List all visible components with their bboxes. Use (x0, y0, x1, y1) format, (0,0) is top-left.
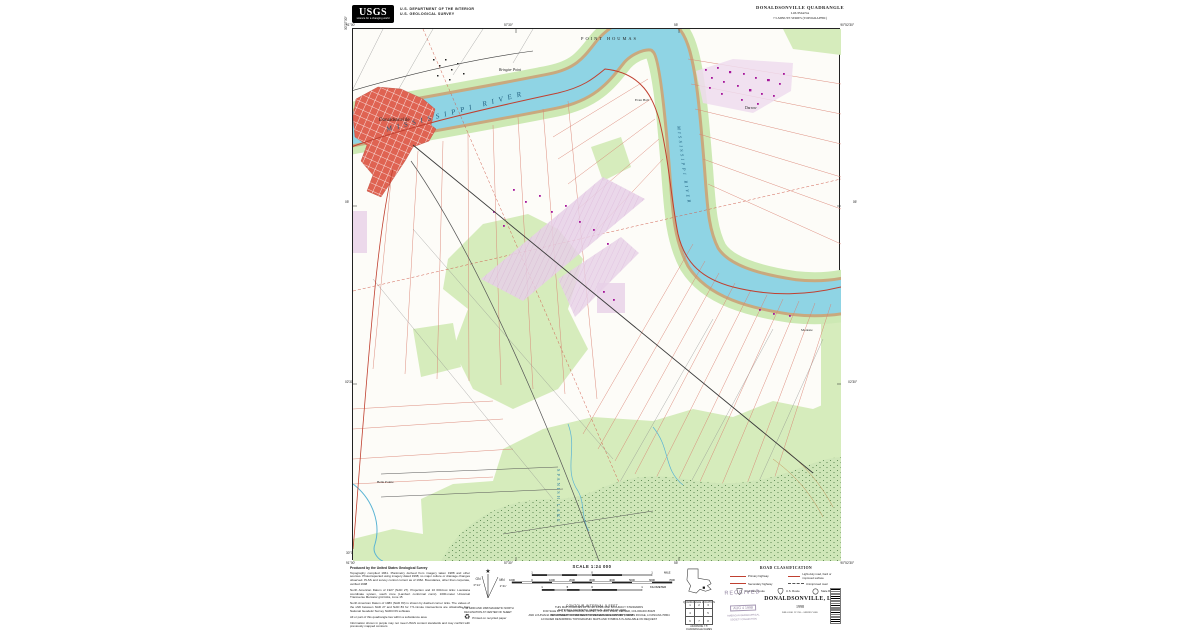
unimproved-road-symbol (788, 583, 804, 584)
received-stamp: RECEIVED AUG 4 1998 AMERICAN GEOGRAPHICA… (719, 589, 766, 622)
donaldsonville-label: Donaldsonville (379, 118, 410, 123)
secondary-highway-symbol (730, 583, 746, 584)
quadrangle-series: 7.5-MINUTE SERIES (TOPOGRAPHIC) (756, 16, 844, 20)
svg-text:★: ★ (485, 568, 490, 575)
adjoining-cell-5: 5 (704, 609, 713, 617)
department-heading: U.S. DEPARTMENT OF THE INTERIOR U.S. GEO… (400, 7, 474, 18)
map-title-year: 1998 (762, 604, 838, 609)
feet-tick-9: 7000 (669, 578, 675, 582)
us-route-shield-icon (777, 588, 784, 595)
km-tick-1r: 1 (641, 585, 643, 589)
adjoining-grid: 1 2 3 4 5 6 7 8 (685, 600, 713, 625)
quad-location-marker (703, 587, 705, 589)
top-tick-55: 55′ (674, 23, 678, 27)
adjoining-cell-7: 7 (695, 617, 704, 625)
adjoining-quadrangles: 1 2 3 4 5 6 7 8 ADJOINING 7.5′ QUADRANGL… (682, 600, 716, 630)
map-title-block: DONALDSONVILLE, LA 1998 DMA 8361 IV SW—S… (762, 596, 838, 614)
left-tick-05: 05′ (345, 200, 349, 204)
scale-title: SCALE 1:24 000 (502, 564, 682, 569)
us-route-label: U.S. Route (786, 589, 800, 593)
corner-coord-bottom-right-lon: 90°52′30″ (840, 561, 854, 565)
evan-hall-label: Evan Hall (635, 98, 649, 102)
right-tick-05: 05′ (853, 200, 857, 204)
barcode (830, 588, 841, 624)
feet-tick-6: 4000 (609, 578, 615, 582)
feet-tick-8: 6000 (649, 578, 655, 582)
adjoining-caption: ADJOINING 7.5′ QUADRANGLE NAMES (682, 626, 716, 630)
light-duty-road-label: Light-duty road, hard or improved surfac… (802, 572, 842, 580)
credit-paragraph-1: Topography compiled 1961. Planimetry der… (350, 572, 470, 587)
credit-paragraph-5: Information shown in purple may not meet… (350, 622, 470, 630)
belle-pointe-label: Belle Pointe (377, 480, 394, 484)
stamp-received: RECEIVED (719, 589, 765, 597)
louisiana-outline (684, 568, 714, 594)
stamp-org-line2: SOCIETY COLLECTION (720, 618, 766, 622)
credit-paragraph-2: North American Datum of 1927 (NAD 27). P… (350, 589, 470, 600)
secondary-highway-label: Secondary highway (748, 582, 772, 586)
quadrangle-title-block: DONALDSONVILLE QUADRANGLE LOUISIANA 7.5-… (756, 5, 844, 20)
km-tick-1: 1 (541, 585, 543, 589)
department-line2: U.S. GEOLOGICAL SURVEY (400, 12, 474, 17)
point-houmas-label: POINT HOUMAS (581, 36, 638, 41)
adjoining-cell-2: 2 (695, 601, 704, 609)
feet-tick-5: 3000 (589, 578, 595, 582)
map-title-code: DMA 8361 IV SW—SERIES V885 (762, 611, 838, 614)
adjoining-cell-6: 6 (686, 617, 695, 625)
map-title-name: DONALDSONVILLE, LA (762, 596, 838, 602)
light-duty-road-symbol (788, 576, 800, 577)
feet-tick-4: 2000 (569, 578, 575, 582)
feet-tick-7: 5000 (629, 578, 635, 582)
state-route-shield-icon (812, 588, 819, 595)
adjoining-cell-3: 3 (704, 601, 713, 609)
map-body: MISSISSIPPI RIVER MISSISSIPPI RIVER POIN… (352, 28, 840, 560)
credit-paragraph-4: All or part of this quadrangle lies with… (350, 616, 470, 620)
gn-value: 0°14′ (474, 583, 481, 587)
feet-tick-1: 1000 (509, 578, 515, 582)
km-unit: KILOMETER (650, 585, 666, 589)
stamp-date: AUG 4 1998 (730, 605, 756, 612)
top-tick-5730: 57′30″ (504, 23, 513, 27)
primary-highway-symbol (730, 576, 746, 577)
adjoining-cell-8: 8 (704, 617, 713, 625)
scale-bars: 1 0 1 MILE 1000 0 1000 2000 3000 4000 50… (502, 570, 682, 596)
unimproved-road-label: Unimproved road (806, 582, 827, 586)
map-canvas: MISSISSIPPI RIVER MISSISSIPPI RIVER POIN… (353, 29, 841, 561)
map-sheet: USGS science for a changing world U.S. D… (344, 0, 858, 630)
gn-label: GN (475, 577, 481, 581)
adjoining-cell-center (695, 609, 704, 617)
mile-tick-0: 0 (591, 570, 593, 574)
adjoining-cell-4: 4 (686, 609, 695, 617)
feet-tick-3: 1000 (549, 578, 555, 582)
credit-paragraph-3: North American Datum of 1983 (NAD 83) is… (350, 602, 470, 613)
right-tick-0230: 02′30″ (848, 380, 857, 384)
credit-heading: Produced by the United States Geological… (350, 566, 470, 570)
quadrangle-location: QUADRANGLE LOCATION (682, 568, 716, 604)
usgs-topo-map-page: USGS science for a changing world U.S. D… (0, 0, 1200, 630)
feet-tick-2: 0 (531, 578, 533, 582)
recycle-icon: ♻ (464, 614, 470, 621)
darrow-label: Darrow (745, 106, 757, 110)
primary-highway-label: Primary highway (748, 574, 769, 578)
mile-tick-1r: 1 (651, 570, 653, 574)
km-tick-05: .5 (566, 585, 569, 589)
usgs-logo-tagline: science for a changing world (357, 18, 390, 21)
corner-coord-bottom-left-lon: 91°00′ (346, 561, 355, 565)
spanish-lake-label: SPANISH LAKE (556, 469, 561, 524)
bringier-point-label: Bringier Point (499, 68, 522, 72)
adjoining-cell-1: 1 (686, 601, 695, 609)
corner-coord-top-right-lon: 90°52′30″ (840, 23, 854, 27)
corner-coord-top-left-lat: 30°07′30″ (344, 16, 348, 30)
riverbank-settlement-buildings (433, 59, 465, 81)
credit-legend: Produced by the United States Geological… (350, 566, 470, 630)
mile-tick-1: 1 (531, 570, 533, 574)
usgs-logo: USGS science for a changing world (352, 5, 394, 23)
km-tick-0: 0 (591, 585, 593, 589)
mile-unit: MILE (664, 570, 671, 574)
road-classification-title: ROAD CLASSIFICATION (730, 566, 842, 570)
modeste-label: Modeste (801, 328, 813, 332)
